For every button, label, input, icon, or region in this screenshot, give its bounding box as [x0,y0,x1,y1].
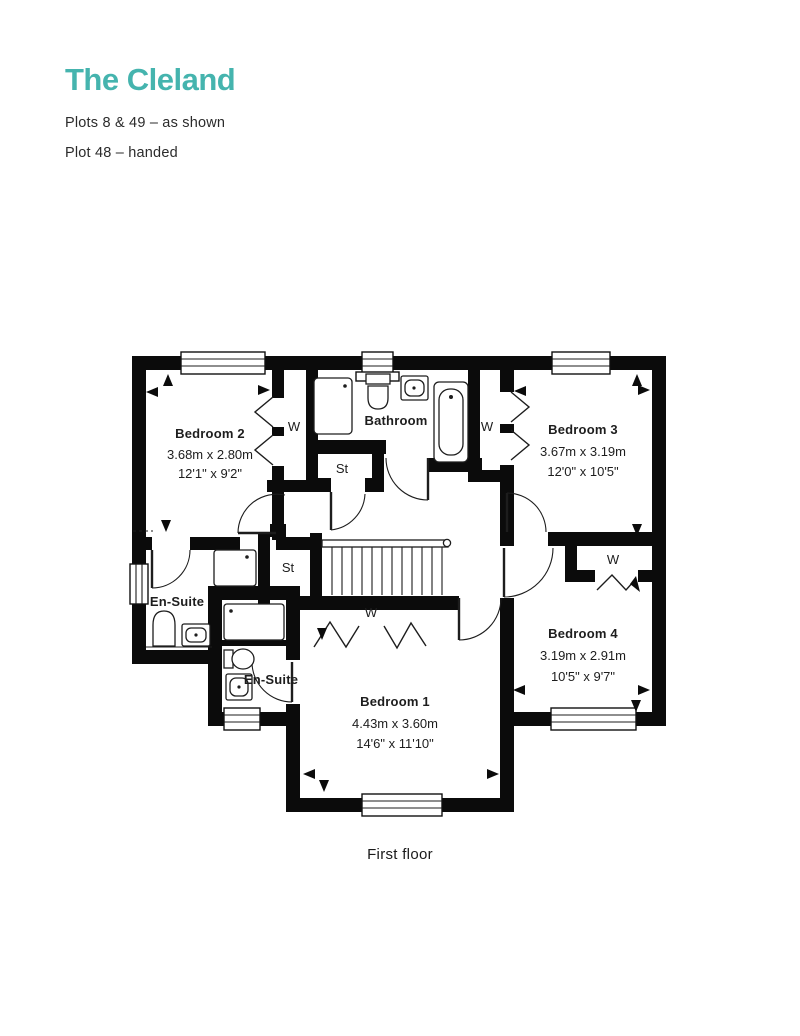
bedroom4-window [551,708,636,730]
ensuite1-name: En-Suite [150,594,204,609]
bedroom3-wardrobe-doors [511,392,529,422]
bedroom2-wardrobe-doors [255,435,273,465]
bedroom4-imperial: 10'5" x 9'7" [551,669,615,684]
floorplan-drawing: Bedroom 2 3.68m x 2.80m 12'1" x 9'2" Bat… [0,0,800,1036]
ensuite2-name: En-Suite [244,672,298,687]
wardrobe-label: W [365,605,378,620]
bedroom3-wardrobe-doors [511,430,529,460]
bathtub-icon [434,382,468,462]
bedroom1-imperial: 14'6" x 11'10" [356,736,434,751]
bedroom2-window [181,352,265,374]
wardrobe-label: W [288,419,301,434]
bedroom1-name: Bedroom 1 [360,694,430,709]
bedroom3-metric: 3.67m x 3.19m [540,444,626,459]
staircase [322,539,451,595]
newel-post-icon [443,539,450,546]
store-label: St [282,560,295,575]
shower-icon [314,378,352,434]
bedroom1-window [362,794,442,816]
ensuite1-door [152,550,190,588]
floor-caption: First floor [0,846,800,863]
bedroom1-door [459,598,501,640]
bedroom4-metric: 3.19m x 2.91m [540,648,626,663]
bedroom2-wardrobe-doors [255,397,273,427]
bedroom1-metric: 4.43m x 3.60m [352,716,438,731]
wardrobe-label: W [607,552,620,567]
bedroom3-name: Bedroom 3 [548,422,618,437]
ensuite2-window [224,708,260,730]
ensuite1-window [130,564,148,604]
toilet-icon [366,374,390,409]
bedroom4-wardrobe-doors [597,575,634,590]
toilet-icon [224,649,254,669]
bedroom2-name: Bedroom 2 [175,426,245,441]
shower-icon [214,550,256,586]
shower-icon [224,604,284,640]
bathroom-name: Bathroom [365,413,428,428]
bedroom2-metric: 3.68m x 2.80m [167,447,253,462]
bedroom2-imperial: 12'1" x 9'2" [178,466,242,481]
wardrobe-label: W [481,419,494,434]
bedroom4-door [504,548,553,597]
bedroom3-window [552,352,610,374]
bedroom1-wardrobe-doors [384,623,426,648]
toilet-icon [153,611,175,646]
store2-door [331,492,365,530]
basin-icon [182,624,210,646]
store-label: St [336,461,349,476]
bathroom-door [386,458,428,500]
basin-icon [401,376,428,400]
bedroom4-name: Bedroom 4 [548,626,618,641]
floorplan-page: The Cleland Plots 8 & 49 – as shown Plot… [0,0,800,1036]
bedroom3-imperial: 12'0" x 10'5" [547,464,619,479]
